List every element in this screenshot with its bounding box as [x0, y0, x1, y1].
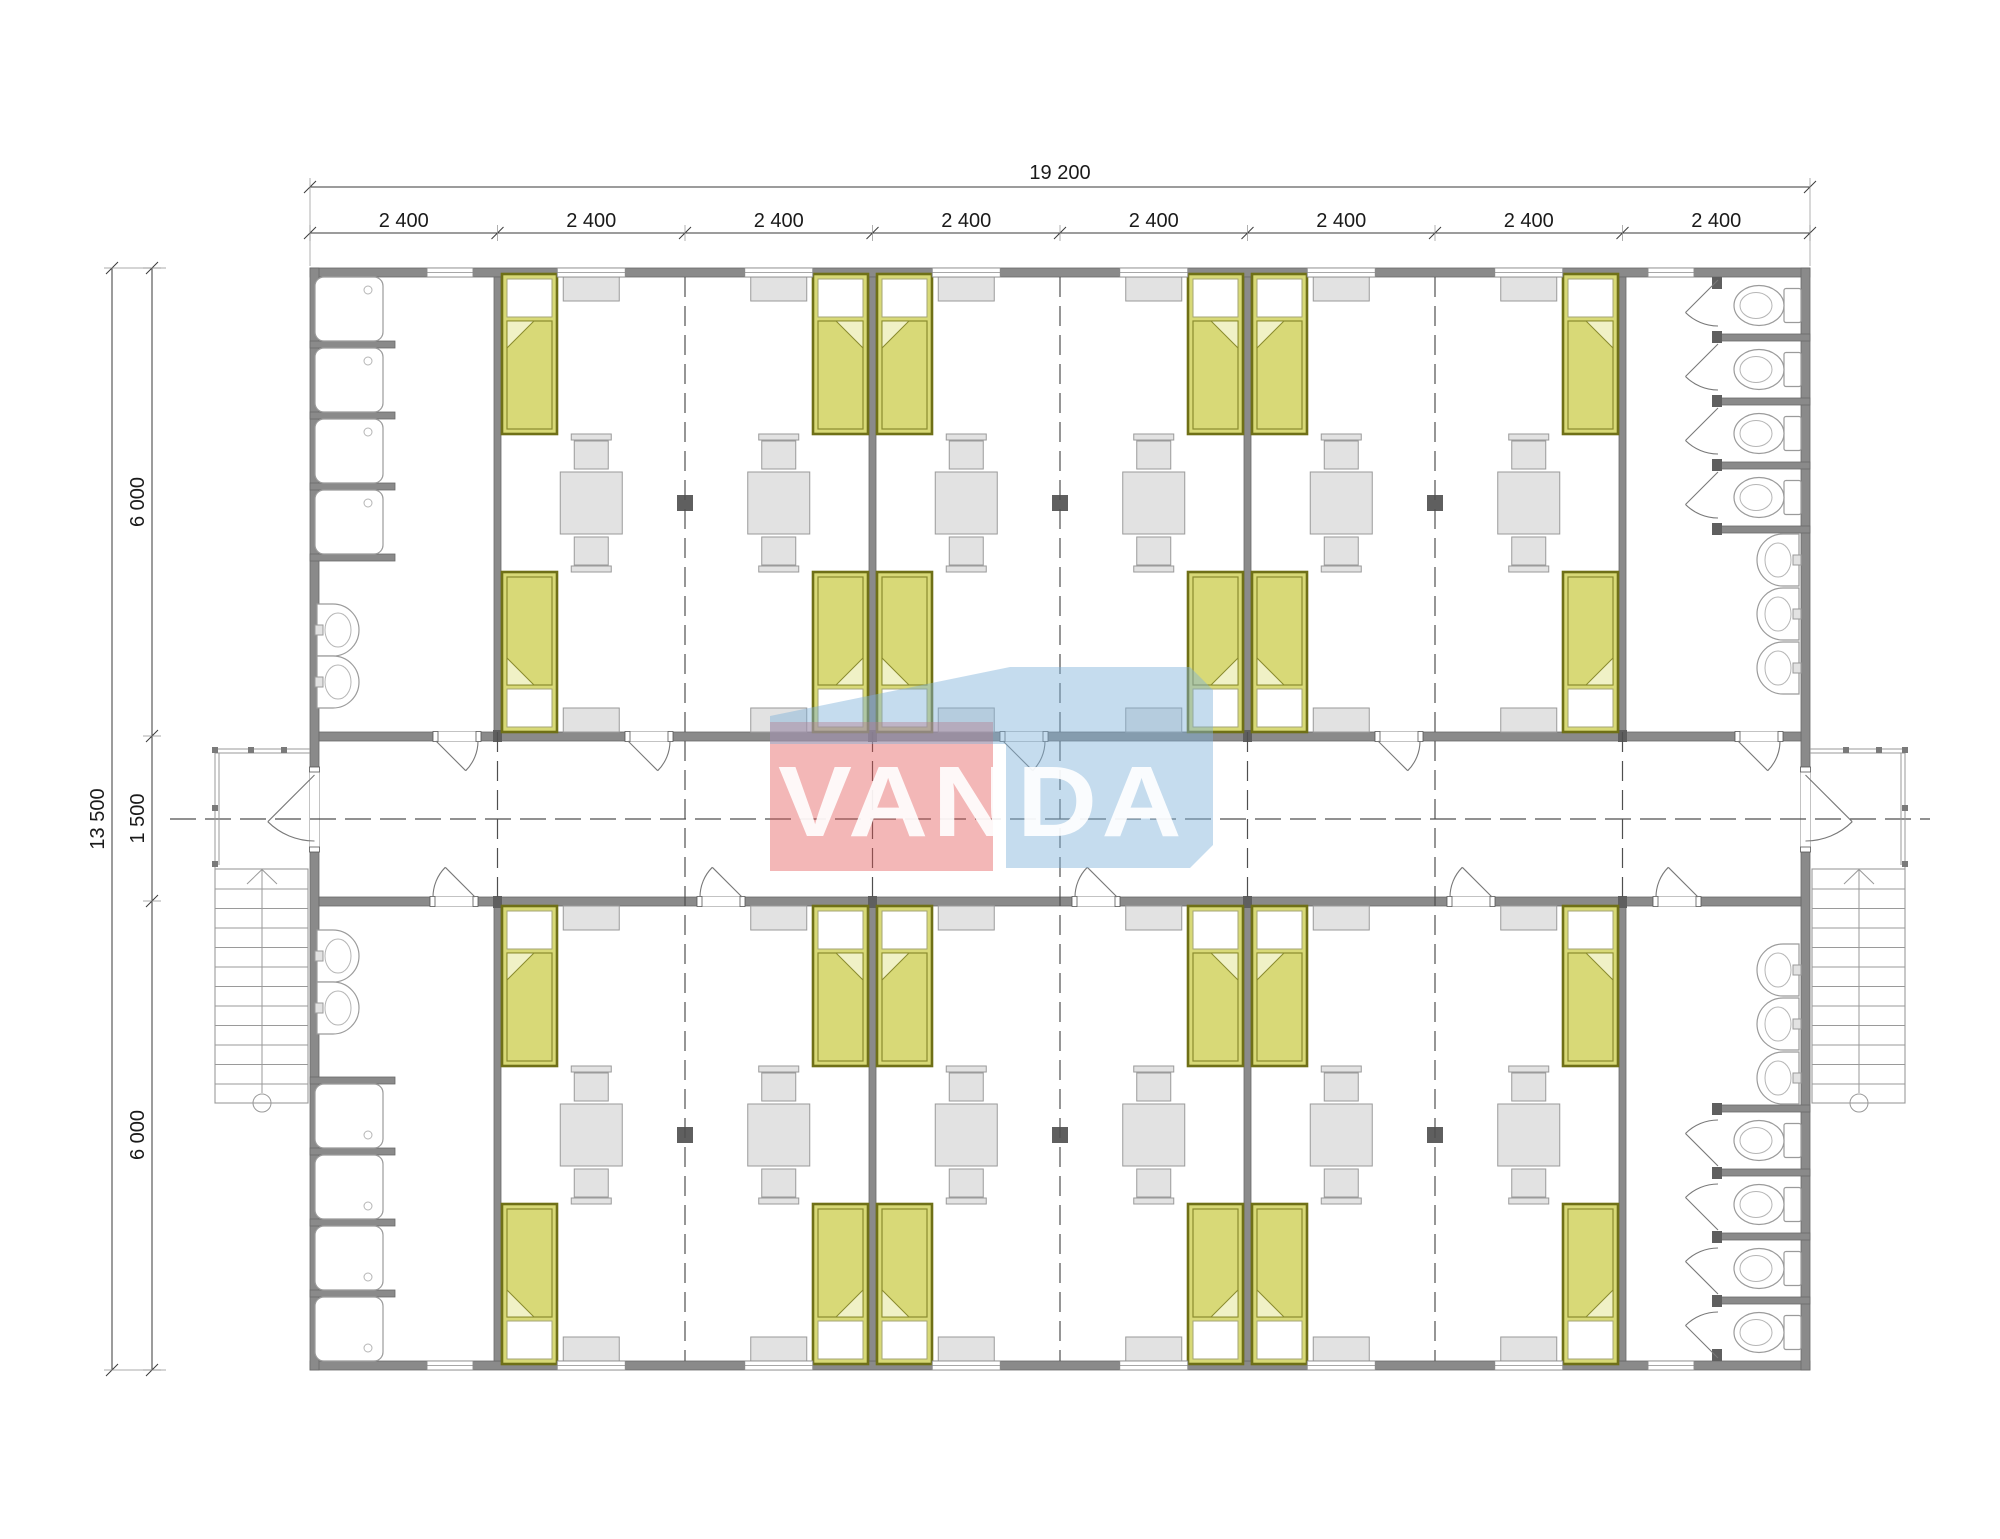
dimension-label: 19 200 [1029, 162, 1090, 184]
shower-tray [315, 277, 383, 341]
cabinet [751, 1337, 807, 1361]
cabinet [1313, 277, 1369, 301]
cabinet [938, 906, 994, 930]
cabinet [1313, 906, 1369, 930]
cabinet [1126, 906, 1182, 930]
toilet [1734, 414, 1801, 454]
bed [1188, 1204, 1243, 1364]
table-with-chairs [1498, 434, 1560, 572]
sink [1757, 588, 1801, 640]
bed [877, 274, 932, 434]
toilet [1734, 1185, 1801, 1225]
cabinet [563, 708, 619, 732]
bed [877, 906, 932, 1066]
dimension-label: 13 500 [87, 788, 109, 849]
bed [1188, 906, 1243, 1066]
table-with-chairs [935, 434, 997, 572]
bed [1252, 572, 1307, 732]
cabinet [1313, 708, 1369, 732]
dimension-label: 6 000 [127, 477, 149, 527]
table-with-chairs [1123, 434, 1185, 572]
table-with-chairs [935, 1066, 997, 1204]
table-with-chairs [1310, 1066, 1372, 1204]
table-with-chairs [560, 1066, 622, 1204]
bed [502, 572, 557, 732]
dimension-label: 2 400 [754, 210, 804, 232]
bed [1188, 274, 1243, 434]
bed [1563, 906, 1618, 1066]
sink [315, 930, 359, 982]
shower-tray [315, 419, 383, 483]
dimension-label: 2 400 [379, 210, 429, 232]
bed [813, 906, 868, 1066]
dimension-label: 2 400 [1316, 210, 1366, 232]
table-with-chairs [560, 434, 622, 572]
sink [1757, 944, 1801, 996]
table-with-chairs [1123, 1066, 1185, 1204]
sink [1757, 1052, 1801, 1104]
toilet [1734, 1313, 1801, 1353]
cabinet [1501, 906, 1557, 930]
bed [1563, 1204, 1618, 1364]
shower-tray [315, 1226, 383, 1290]
shower-tray [315, 1297, 383, 1361]
shower-tray [315, 490, 383, 554]
sink [1757, 642, 1801, 694]
cabinet [751, 906, 807, 930]
bed [502, 906, 557, 1066]
bed [813, 1204, 868, 1364]
sink [315, 604, 359, 656]
sink [1757, 998, 1801, 1050]
bed [813, 274, 868, 434]
table-with-chairs [1498, 1066, 1560, 1204]
bed [877, 1204, 932, 1364]
floor-plan-page: 19 2002 4002 4002 4002 4002 4002 4002 40… [0, 0, 2000, 1539]
shower-tray [315, 1084, 383, 1148]
shower-tray [315, 348, 383, 412]
dimension-label: 2 400 [566, 210, 616, 232]
cabinet [938, 277, 994, 301]
sink [315, 982, 359, 1034]
bed [502, 274, 557, 434]
dimension-label: 6 000 [127, 1110, 149, 1160]
dimension-label: 2 400 [941, 210, 991, 232]
dimension-label: 2 400 [1691, 210, 1741, 232]
toilet [1734, 478, 1801, 518]
dimension-label: 2 400 [1129, 210, 1179, 232]
cabinet [563, 1337, 619, 1361]
dimension-label: 2 400 [1504, 210, 1554, 232]
bed [1563, 274, 1618, 434]
cabinet [1501, 708, 1557, 732]
watermark-text: VANDA [778, 746, 1186, 858]
toilet [1734, 1249, 1801, 1289]
dimension-label: 1 500 [127, 793, 149, 843]
cabinet [563, 906, 619, 930]
sink [315, 656, 359, 708]
bed [502, 1204, 557, 1364]
cabinet [1313, 1337, 1369, 1361]
cabinet [1501, 1337, 1557, 1361]
toilet [1734, 286, 1801, 326]
table-with-chairs [748, 434, 810, 572]
cabinet [1126, 277, 1182, 301]
shower-tray [315, 1155, 383, 1219]
cabinet [1501, 277, 1557, 301]
table-with-chairs [748, 1066, 810, 1204]
cabinet [563, 277, 619, 301]
toilet [1734, 350, 1801, 390]
floor-plan-canvas: 19 2002 4002 4002 4002 4002 4002 4002 40… [0, 0, 2000, 1539]
bed [1252, 906, 1307, 1066]
cabinet [751, 277, 807, 301]
bed [1252, 1204, 1307, 1364]
bed [1252, 274, 1307, 434]
cabinet [938, 1337, 994, 1361]
table-with-chairs [1310, 434, 1372, 572]
bed [1563, 572, 1618, 732]
toilet [1734, 1121, 1801, 1161]
sink [1757, 534, 1801, 586]
cabinet [1126, 1337, 1182, 1361]
